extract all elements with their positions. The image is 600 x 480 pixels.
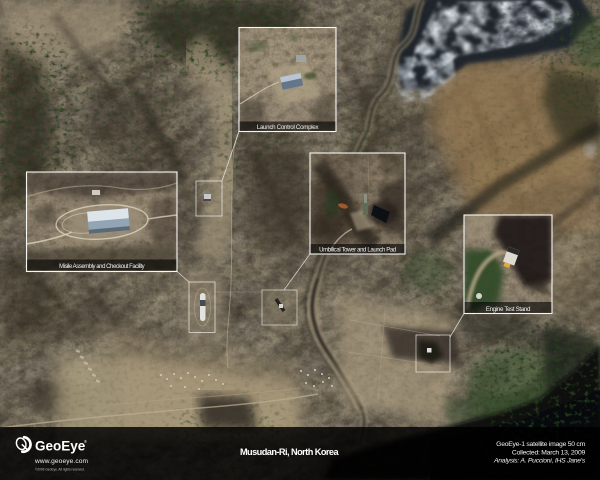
svg-text:Analysis: A. Puccioni, IHS Jan: Analysis: A. Puccioni, IHS Jane's (493, 458, 586, 465)
svg-text:Engine Test Stand: Engine Test Stand (486, 306, 531, 313)
svg-text:Launch Control Complex: Launch Control Complex (257, 124, 320, 131)
svg-text:®: ® (84, 439, 87, 444)
svg-text:www.geoeye.com: www.geoeye.com (34, 458, 88, 465)
svg-text:Collected: March 13, 2009: Collected: March 13, 2009 (512, 450, 586, 457)
svg-text:Umbilical Tower and Launch Pad: Umbilical Tower and Launch Pad (319, 248, 396, 254)
svg-text:Musudan-Ri, North Korea: Musudan-Ri, North Korea (240, 447, 340, 457)
svg-text:GeoEye-1 satellite image 50 cm: GeoEye-1 satellite image 50 cm (496, 441, 585, 448)
svg-text:GeoEye: GeoEye (35, 439, 86, 454)
svg-text:©2009 GeoEye. All rights reser: ©2009 GeoEye. All rights reserved. (35, 468, 85, 472)
svg-text:Misile Assembly and Checkout F: Misile Assembly and Checkout Facility (59, 264, 145, 270)
